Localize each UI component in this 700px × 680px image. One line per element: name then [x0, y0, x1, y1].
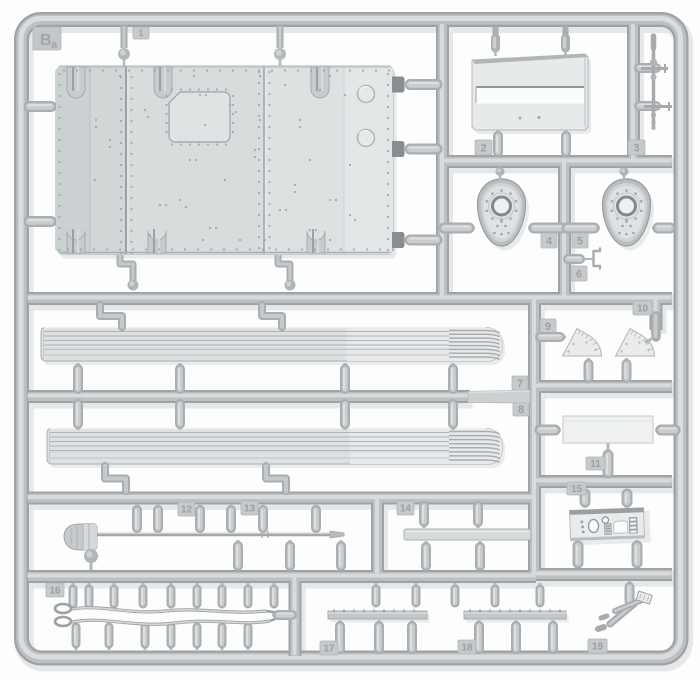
svg-text:10: 10: [637, 304, 649, 315]
svg-text:9: 9: [545, 321, 551, 333]
svg-text:12: 12: [181, 505, 193, 516]
svg-text:4: 4: [546, 235, 553, 247]
svg-text:14: 14: [400, 504, 412, 515]
svg-text:19: 19: [592, 642, 604, 653]
svg-text:15: 15: [571, 484, 583, 495]
svg-text:16: 16: [49, 586, 61, 597]
svg-text:2: 2: [480, 142, 486, 154]
svg-text:7: 7: [517, 378, 523, 390]
svg-text:a: a: [51, 39, 58, 51]
svg-text:13: 13: [244, 504, 256, 515]
svg-text:1: 1: [138, 28, 143, 38]
svg-text:8: 8: [518, 404, 524, 416]
svg-text:17: 17: [323, 644, 335, 655]
svg-text:11: 11: [590, 459, 601, 470]
svg-text:B: B: [40, 32, 52, 49]
svg-text:6: 6: [576, 268, 582, 280]
svg-text:18: 18: [461, 643, 473, 654]
svg-text:3: 3: [633, 142, 639, 154]
svg-text:5: 5: [577, 235, 583, 247]
